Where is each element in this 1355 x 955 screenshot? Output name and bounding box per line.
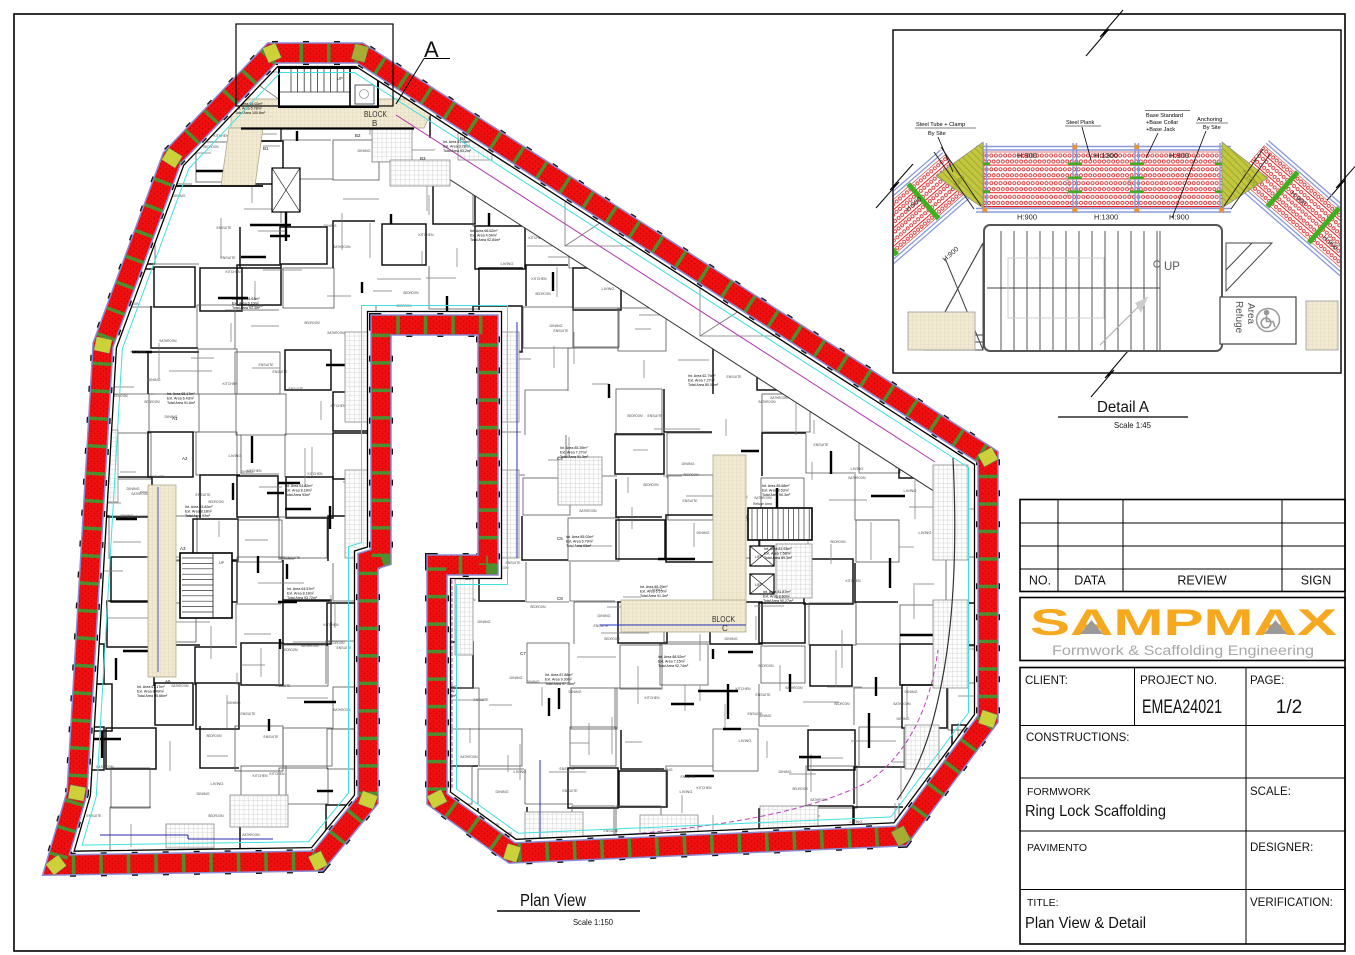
svg-text:ENSUITE: ENSUITE bbox=[87, 814, 103, 818]
svg-text:Total Area 91.6m²: Total Area 91.6m² bbox=[167, 401, 196, 405]
svg-text:Refuge: Refuge bbox=[1233, 301, 1244, 334]
svg-text:Int. Area 63.82m²: Int. Area 63.82m² bbox=[285, 484, 313, 488]
svg-text:DINING: DINING bbox=[725, 637, 738, 641]
svg-text:1/2: 1/2 bbox=[1276, 697, 1302, 718]
svg-text:Total Area 80.02m²: Total Area 80.02m² bbox=[688, 383, 719, 387]
svg-text:DINING: DINING bbox=[510, 676, 523, 680]
svg-text:Int. Area 67.98m²: Int. Area 67.98m² bbox=[443, 140, 471, 144]
svg-text:BATHROOM: BATHROOM bbox=[334, 245, 351, 249]
svg-text:KITCHEN: KITCHEN bbox=[226, 270, 242, 274]
svg-text:BEDROOM: BEDROOM bbox=[404, 291, 419, 295]
svg-text:ENSUITE: ENSUITE bbox=[196, 493, 212, 497]
svg-text:DINING: DINING bbox=[759, 714, 772, 718]
svg-text:ENSUITE: ENSUITE bbox=[286, 556, 302, 560]
svg-text:Plan View: Plan View bbox=[520, 890, 586, 910]
svg-text:BEDROOM: BEDROOM bbox=[605, 637, 620, 641]
svg-text:BEDROOM: BEDROOM bbox=[330, 641, 345, 645]
svg-text:PAGE:: PAGE: bbox=[1250, 675, 1284, 687]
svg-text:H:1300: H:1300 bbox=[1094, 213, 1118, 222]
svg-text:BEDROOM: BEDROOM bbox=[209, 814, 224, 818]
svg-text:By Site: By Site bbox=[1203, 125, 1221, 131]
svg-text:ENSUITE: ENSUITE bbox=[289, 387, 305, 391]
svg-text:Ext. Area 7.15m²: Ext. Area 7.15m² bbox=[658, 660, 686, 664]
svg-text:Int. Area 85.39m²: Int. Area 85.39m² bbox=[560, 446, 588, 450]
svg-text:H:1200: H:1200 bbox=[1066, 176, 1072, 196]
svg-text:Total Area 91.3m²: Total Area 91.3m² bbox=[560, 455, 589, 459]
svg-text:Ext. Area 7.27m²: Ext. Area 7.27m² bbox=[688, 379, 716, 383]
svg-text:Formwork & Scaffolding Enginee: Formwork & Scaffolding Engineering bbox=[1052, 643, 1314, 658]
svg-text:SCALE:: SCALE: bbox=[1250, 786, 1291, 798]
svg-text:VERIFICATION:: VERIFICATION: bbox=[1250, 897, 1333, 909]
svg-text:Ext. Area 8.18m²: Ext. Area 8.18m² bbox=[287, 592, 315, 596]
svg-text:LIVING: LIVING bbox=[514, 770, 527, 774]
svg-text:DINING: DINING bbox=[148, 378, 161, 382]
svg-text:ENSUITE: ENSUITE bbox=[241, 712, 257, 716]
svg-text:C5: C5 bbox=[557, 536, 563, 541]
svg-text:LIVING: LIVING bbox=[501, 262, 514, 266]
svg-text:Scale 1:150: Scale 1:150 bbox=[573, 917, 613, 927]
svg-text:Int. Area 62.79m²: Int. Area 62.79m² bbox=[688, 374, 716, 378]
svg-text:ENSUITE: ENSUITE bbox=[814, 443, 830, 447]
svg-text:Ext. Area 7.27m²: Ext. Area 7.27m² bbox=[560, 451, 588, 455]
svg-text:Ext. Area 8.18m²: Ext. Area 8.18m² bbox=[285, 489, 313, 493]
svg-text:BATHROOM: BATHROOM bbox=[759, 400, 776, 404]
svg-text:BEDROOM: BEDROOM bbox=[531, 605, 546, 609]
svg-text:Int. Area 64.57m²: Int. Area 64.57m² bbox=[287, 587, 315, 591]
svg-text:Ext. Area 6.43m²: Ext. Area 6.43m² bbox=[167, 397, 195, 401]
svg-text:KITCHEN: KITCHEN bbox=[419, 233, 435, 237]
svg-text:BATHROOM: BATHROOM bbox=[97, 765, 114, 769]
svg-text:DINING: DINING bbox=[324, 224, 337, 228]
svg-text:Int. Area 87.88m²: Int. Area 87.88m² bbox=[545, 673, 573, 677]
svg-text:By Site: By Site bbox=[928, 131, 946, 137]
svg-text:Ext. Area 8.18m²: Ext. Area 8.18m² bbox=[185, 510, 213, 514]
svg-text:BATHROOM: BATHROOM bbox=[580, 509, 597, 513]
svg-text:DINING: DINING bbox=[660, 768, 673, 772]
svg-text:B: B bbox=[372, 119, 377, 128]
svg-text:C7: C7 bbox=[520, 651, 526, 656]
svg-text:Total Area 93.72m²: Total Area 93.72m² bbox=[287, 596, 318, 600]
svg-text:+Base Collar: +Base Collar bbox=[1146, 120, 1178, 126]
svg-text:LIVING: LIVING bbox=[904, 489, 917, 493]
svg-text:ENSUITE: ENSUITE bbox=[273, 370, 289, 374]
svg-text:UP: UP bbox=[337, 76, 343, 81]
svg-text:Total Area 93m²: Total Area 93m² bbox=[566, 544, 592, 548]
svg-text:Total Area 91.3m²: Total Area 91.3m² bbox=[640, 594, 669, 598]
svg-text:Ext. Area 6.79m²: Ext. Area 6.79m² bbox=[566, 540, 594, 544]
svg-text:H:900: H:900 bbox=[1169, 151, 1189, 160]
svg-text:ENSUITE: ENSUITE bbox=[727, 375, 743, 379]
svg-text:Ring Lock Scaffolding: Ring Lock Scaffolding bbox=[1025, 803, 1166, 820]
svg-text:CLIENT:: CLIENT: bbox=[1025, 675, 1068, 687]
svg-text:BEDROOM: BEDROOM bbox=[684, 473, 699, 477]
svg-text:LIVING: LIVING bbox=[919, 531, 932, 535]
svg-text:A1: A1 bbox=[172, 416, 178, 421]
svg-text:BEDROOM: BEDROOM bbox=[283, 648, 298, 652]
svg-text:LIVING: LIVING bbox=[602, 287, 615, 291]
svg-text:BEDROOM: BEDROOM bbox=[536, 292, 551, 296]
svg-text:LIVING: LIVING bbox=[680, 790, 693, 794]
svg-text:Int. Area 85.29m²: Int. Area 85.29m² bbox=[640, 585, 668, 589]
svg-text:KITCHEN: KITCHEN bbox=[131, 350, 147, 354]
svg-text:+Base Jack: +Base Jack bbox=[1146, 127, 1175, 133]
svg-text:Steel Tube + Clamp: Steel Tube + Clamp bbox=[916, 122, 965, 128]
svg-text:ENSUITE: ENSUITE bbox=[474, 698, 490, 702]
svg-text:Plan View & Detail: Plan View & Detail bbox=[1025, 915, 1146, 932]
svg-text:Total Area 90.27m²: Total Area 90.27m² bbox=[763, 599, 794, 603]
svg-text:BLOCK: BLOCK bbox=[364, 110, 388, 119]
svg-text:ENSUITE: ENSUITE bbox=[560, 767, 576, 771]
svg-text:Int. Area 67.17m²: Int. Area 67.17m² bbox=[137, 685, 165, 689]
svg-text:DINING: DINING bbox=[228, 701, 241, 705]
svg-text:DINING: DINING bbox=[478, 620, 491, 624]
svg-text:BEDROOM: BEDROOM bbox=[305, 321, 320, 325]
svg-text:LIVING: LIVING bbox=[850, 820, 863, 824]
svg-text:Int. Area 85.02m²: Int. Area 85.02m² bbox=[566, 535, 594, 539]
svg-text:BEDROOM: BEDROOM bbox=[793, 787, 808, 791]
svg-text:ENSUITE: ENSUITE bbox=[150, 475, 166, 479]
svg-text:Ext. Area 8.49m²: Ext. Area 8.49m² bbox=[137, 690, 165, 694]
svg-text:B2: B2 bbox=[355, 133, 361, 138]
svg-text:Total Area 97.18m²: Total Area 97.18m² bbox=[545, 682, 576, 686]
svg-text:DINING: DINING bbox=[905, 690, 918, 694]
svg-text:Total Area 89.3m²: Total Area 89.3m² bbox=[764, 556, 793, 560]
svg-text:BATHROOM: BATHROOM bbox=[894, 702, 911, 706]
svg-text:ENSUITE: ENSUITE bbox=[681, 775, 697, 779]
svg-text:KITCHEN: KITCHEN bbox=[736, 687, 752, 691]
svg-text:DINING: DINING bbox=[550, 324, 563, 328]
svg-text:BATHROOM: BATHROOM bbox=[328, 331, 345, 335]
svg-text:Total Area 100.8m²: Total Area 100.8m² bbox=[235, 111, 266, 115]
svg-text:KITCHEN: KITCHEN bbox=[270, 772, 286, 776]
svg-text:KITCHEN: KITCHEN bbox=[247, 469, 263, 473]
svg-text:EMEA24021: EMEA24021 bbox=[1142, 697, 1222, 718]
svg-text:Total Area 93m²: Total Area 93m² bbox=[185, 514, 211, 518]
svg-text:REVIEW: REVIEW bbox=[1177, 574, 1227, 588]
svg-text:Total Area 93m²: Total Area 93m² bbox=[285, 493, 311, 497]
svg-text:Total Area 92.84m²: Total Area 92.84m² bbox=[470, 238, 501, 242]
svg-text:B1: B1 bbox=[263, 146, 269, 151]
svg-text:DINING: DINING bbox=[779, 770, 792, 774]
svg-text:Scale 1:45: Scale 1:45 bbox=[1114, 420, 1151, 430]
svg-text:DINING: DINING bbox=[127, 487, 140, 491]
svg-text:DINING: DINING bbox=[496, 790, 509, 794]
svg-text:Steel Plank: Steel Plank bbox=[1066, 120, 1094, 126]
svg-text:PROJECT NO.: PROJECT NO. bbox=[1140, 675, 1217, 687]
svg-text:Detail A: Detail A bbox=[1097, 399, 1150, 416]
svg-text:BATHROOM: BATHROOM bbox=[160, 339, 177, 343]
svg-text:Refuge Area: Refuge Area bbox=[753, 502, 772, 506]
svg-text:Ext. Area 4.04m²: Ext. Area 4.04m² bbox=[470, 234, 498, 238]
svg-text:C: C bbox=[722, 624, 728, 633]
svg-text:Total Area 95.66m²: Total Area 95.66m² bbox=[137, 694, 168, 698]
svg-text:PAVIMENTO: PAVIMENTO bbox=[1027, 842, 1087, 854]
svg-text:BEDROOM: BEDROOM bbox=[145, 400, 160, 404]
svg-text:KITCHEN: KITCHEN bbox=[532, 277, 548, 281]
svg-text:UP: UP bbox=[219, 561, 225, 565]
svg-text:C8: C8 bbox=[557, 596, 563, 601]
svg-text:KITCHEN: KITCHEN bbox=[331, 404, 347, 408]
svg-text:DINING: DINING bbox=[121, 514, 134, 518]
svg-text:DINING: DINING bbox=[682, 462, 695, 466]
svg-text:BATHROOM: BATHROOM bbox=[243, 833, 260, 837]
svg-text:ENSUITE: ENSUITE bbox=[648, 414, 664, 418]
svg-text:BATHROOM: BATHROOM bbox=[172, 684, 189, 688]
svg-text:DATA: DATA bbox=[1074, 574, 1106, 588]
svg-text:Ext. Area 6.10m²: Ext. Area 6.10m² bbox=[232, 302, 260, 306]
svg-text:Int. Area 66.62m²: Int. Area 66.62m² bbox=[470, 229, 498, 233]
svg-text:Ext. Area 9.30m²: Ext. Area 9.30m² bbox=[545, 678, 573, 682]
svg-text:BEDROOM: BEDROOM bbox=[628, 414, 643, 418]
svg-text:FORMWORK: FORMWORK bbox=[1027, 786, 1091, 798]
svg-text:A2: A2 bbox=[182, 456, 188, 461]
svg-text:Int. Area 85.68m²: Int. Area 85.68m² bbox=[762, 484, 790, 488]
svg-text:BLOCK: BLOCK bbox=[712, 615, 736, 624]
svg-text:Ext. Area 6.10m²: Ext. Area 6.10m² bbox=[640, 590, 668, 594]
svg-text:A5: A5 bbox=[165, 679, 171, 684]
svg-text:BATHROOM: BATHROOM bbox=[786, 686, 803, 690]
svg-text:BATHROOM: BATHROOM bbox=[849, 476, 866, 480]
svg-text:BEDROOM: BEDROOM bbox=[835, 702, 850, 706]
svg-text:BEDROOM: BEDROOM bbox=[759, 664, 774, 668]
svg-text:H:1200: H:1200 bbox=[1128, 176, 1134, 196]
svg-text:DINING: DINING bbox=[569, 690, 582, 694]
svg-text:LIVING: LIVING bbox=[739, 739, 752, 743]
svg-text:Total Area 90.3m²: Total Area 90.3m² bbox=[762, 493, 791, 497]
svg-text:A3: A3 bbox=[180, 546, 186, 551]
svg-text:BATHROOM: BATHROOM bbox=[132, 492, 149, 496]
svg-text:KITCHEN: KITCHEN bbox=[846, 579, 862, 583]
svg-text:ENSUITE: ENSUITE bbox=[337, 646, 353, 650]
svg-text:BATHROOM: BATHROOM bbox=[461, 755, 478, 759]
svg-text:Anchoring: Anchoring bbox=[1197, 117, 1222, 123]
svg-text:Int. Area 81.87m²: Int. Area 81.87m² bbox=[763, 590, 791, 594]
svg-text:Int. Area 65.63m²: Int. Area 65.63m² bbox=[232, 297, 260, 301]
svg-text:H:1300: H:1300 bbox=[1094, 151, 1118, 160]
svg-text:SIGN: SIGN bbox=[1301, 574, 1332, 588]
svg-text:Area: Area bbox=[1245, 303, 1256, 325]
svg-text:Base Standard: Base Standard bbox=[1146, 113, 1183, 119]
svg-text:H:900: H:900 bbox=[1017, 151, 1037, 160]
svg-text:Ext. Area 8.60m²: Ext. Area 8.60m² bbox=[763, 595, 791, 599]
svg-text:B3: B3 bbox=[420, 156, 426, 161]
svg-text:KITCHEN: KITCHEN bbox=[308, 472, 324, 476]
svg-text:ENSUITE: ENSUITE bbox=[756, 693, 772, 697]
svg-text:ENSUITE: ENSUITE bbox=[563, 789, 579, 793]
svg-text:H:900: H:900 bbox=[1017, 213, 1037, 222]
svg-text:Int. Area 81.93m²: Int. Area 81.93m² bbox=[764, 547, 792, 551]
svg-text:Ext. Area 8.53m²: Ext. Area 8.53m² bbox=[762, 489, 790, 493]
svg-text:LIVING: LIVING bbox=[211, 782, 224, 786]
svg-text:KITCHEN: KITCHEN bbox=[645, 696, 661, 700]
svg-text:DINING: DINING bbox=[897, 717, 910, 721]
svg-text:NO.: NO. bbox=[1029, 574, 1051, 588]
svg-text:Total Area 92.74m²: Total Area 92.74m² bbox=[658, 664, 689, 668]
svg-text:ENSUITE: ENSUITE bbox=[554, 329, 570, 333]
svg-text:LIVING: LIVING bbox=[229, 454, 242, 458]
svg-text:Ext. Area 7.58m²: Ext. Area 7.58m² bbox=[764, 552, 792, 556]
svg-text:BEDROOM: BEDROOM bbox=[644, 483, 659, 487]
svg-text:DINING: DINING bbox=[697, 531, 710, 535]
svg-text:BATHROOM: BATHROOM bbox=[302, 644, 319, 648]
svg-text:ENSUITE: ENSUITE bbox=[217, 226, 233, 230]
svg-text:UP: UP bbox=[1164, 261, 1180, 273]
svg-text:BEDROOM: BEDROOM bbox=[209, 500, 224, 504]
svg-text:BEDROOM: BEDROOM bbox=[207, 734, 222, 738]
svg-text:SAMPMAX: SAMPMAX bbox=[1030, 602, 1338, 643]
svg-text:TITLE:: TITLE: bbox=[1027, 897, 1059, 909]
svg-text:Int. Area 65.17m²: Int. Area 65.17m² bbox=[167, 392, 195, 396]
svg-text:LIFT: LIFT bbox=[755, 555, 762, 559]
svg-text:LIFT: LIFT bbox=[755, 583, 762, 587]
svg-text:DINING: DINING bbox=[598, 614, 611, 618]
svg-text:ENSUITE: ENSUITE bbox=[259, 363, 275, 367]
svg-text:DINING: DINING bbox=[358, 149, 371, 153]
svg-text:Total Area 93.2m²: Total Area 93.2m² bbox=[443, 149, 472, 153]
svg-text:Total Area 91.3m²: Total Area 91.3m² bbox=[232, 306, 261, 310]
svg-text:Int. Area 63.82m²: Int. Area 63.82m² bbox=[185, 505, 213, 509]
svg-text:BEDROOM: BEDROOM bbox=[831, 540, 846, 544]
svg-text:ENSUITE: ENSUITE bbox=[683, 499, 699, 503]
svg-text:Int. Area 88.52m²: Int. Area 88.52m² bbox=[658, 655, 686, 659]
svg-text:KITCHEN: KITCHEN bbox=[253, 774, 269, 778]
svg-text:KITCHEN: KITCHEN bbox=[223, 382, 239, 386]
svg-text:DESIGNER:: DESIGNER: bbox=[1250, 842, 1313, 854]
svg-text:KITCHEN: KITCHEN bbox=[697, 786, 713, 790]
svg-text:C4: C4 bbox=[557, 456, 563, 461]
svg-text:KITCHEN: KITCHEN bbox=[324, 623, 340, 627]
svg-text:LIVING: LIVING bbox=[851, 467, 864, 471]
svg-text:ENSUITE: ENSUITE bbox=[264, 735, 280, 739]
svg-text:CONSTRUCTIONS:: CONSTRUCTIONS: bbox=[1026, 732, 1130, 744]
svg-text:DINING: DINING bbox=[527, 680, 540, 684]
svg-text:DINING: DINING bbox=[197, 792, 210, 796]
svg-text:ENSUITE: ENSUITE bbox=[276, 684, 292, 688]
svg-text:ENSUITE: ENSUITE bbox=[221, 256, 237, 260]
